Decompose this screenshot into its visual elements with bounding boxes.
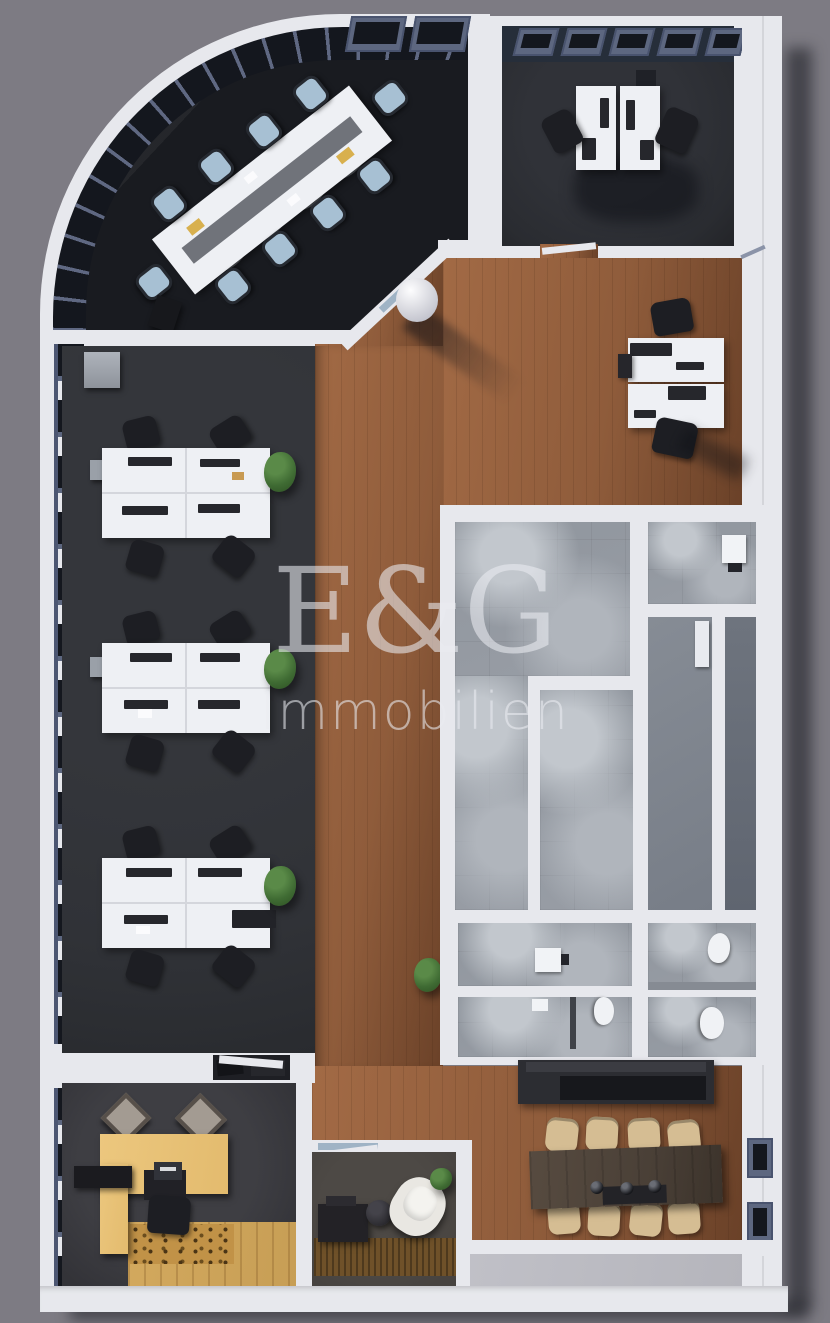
counter-top-edge [526,1062,706,1072]
window-glass [617,34,648,48]
conference-window [345,16,407,52]
monitor [200,459,240,467]
monitor [122,506,168,515]
window-glass [521,34,552,48]
monitor [630,343,672,356]
quad-desk [102,643,270,733]
desk-paper [232,472,244,480]
entry-recess [213,1055,290,1080]
window-glass [569,34,600,48]
office-chair [121,609,161,646]
office-chair [121,414,161,451]
monitor [130,653,172,662]
east-window [747,1138,773,1178]
monitor [668,386,706,400]
monitor [198,504,240,513]
terrace-floor [470,1254,742,1288]
core-room-leg [455,676,528,910]
printer-paper [160,1167,176,1171]
monitor [582,138,596,160]
monitor [200,653,240,662]
office-chair [124,538,166,578]
lounge-rug [314,1238,456,1276]
south-wall [40,1286,788,1312]
table-paper [286,193,300,207]
conference-east-wall [468,14,488,258]
potted-plant [264,452,296,492]
filing-cabinet [84,352,120,388]
window-glass [352,22,400,44]
desk-paper [136,926,150,934]
office-window [561,28,608,56]
kitchen-counter [518,1060,714,1104]
toilet [594,997,614,1025]
monitor [600,98,609,128]
office-chair [210,532,258,579]
potted-plant [264,649,296,689]
reception-east-wall [296,1053,312,1290]
monitor [124,915,168,924]
window-glass [665,34,696,48]
desk-seam [102,687,270,689]
office-chair [121,824,161,861]
bench-step [326,1196,356,1206]
core-room-large [455,522,630,676]
toilet [700,1007,724,1039]
printer [154,1162,182,1180]
monitor [198,868,242,877]
side-cabinet [232,910,276,928]
dining-chair [628,1200,663,1237]
monitor [128,457,172,466]
wall-mounted-sink [722,535,746,563]
conference-window [409,16,471,52]
office-window-band [502,26,734,62]
sink-base [728,563,742,572]
monitor [124,700,168,709]
monitor [640,140,654,160]
wc-divider [648,982,756,990]
desk-cluster [98,613,298,775]
washroom-sink [532,999,548,1011]
potted-plant [264,866,296,906]
reception-chair [147,1195,192,1236]
stall-partition [570,997,576,1049]
dining-table [529,1145,723,1210]
counter-inset [560,1076,706,1100]
private-office [488,16,762,258]
window-glass [753,1208,767,1236]
office-desk [576,86,616,170]
building-shadow-right [786,48,812,1310]
desk-paper [138,709,152,718]
inner-room [540,690,633,910]
office-chair [210,727,258,774]
hall-desk [628,338,724,382]
monitor [198,700,240,709]
column [396,278,438,322]
monitor [126,868,172,877]
sink-tap [561,954,569,965]
counter [695,621,709,667]
dining-chair [544,1116,579,1153]
office-chair [649,297,694,337]
table-paper [244,171,258,185]
core-corridor-east [725,617,756,910]
floor-plan-render: E&G Immobilien [0,0,830,1323]
office-window [513,28,560,56]
office-chair [124,948,166,988]
side-cabinet [618,354,632,378]
office-window [609,28,656,56]
desk-seam [102,902,270,904]
lounge-bench [318,1204,368,1242]
monitor [676,362,704,370]
window-glass [753,1144,767,1170]
wc-room [648,923,756,986]
east-window [747,1202,773,1244]
desk-seam [102,492,270,494]
office-chair [210,942,258,989]
low-cabinet [74,1166,132,1188]
washroom-sink [535,948,561,972]
monitor [626,100,635,130]
monitor [634,410,656,418]
window-glass [713,34,740,48]
quad-desk [102,858,270,948]
dining-chair [585,1116,619,1152]
office-window [657,28,704,56]
office-chair [124,733,166,773]
desk-cluster [98,418,298,580]
service-core [440,505,780,1065]
desk-cluster [98,828,298,990]
window-glass [416,22,464,44]
office-desk [620,86,660,170]
hall-desk-group [618,298,730,458]
quad-desk [102,448,270,538]
